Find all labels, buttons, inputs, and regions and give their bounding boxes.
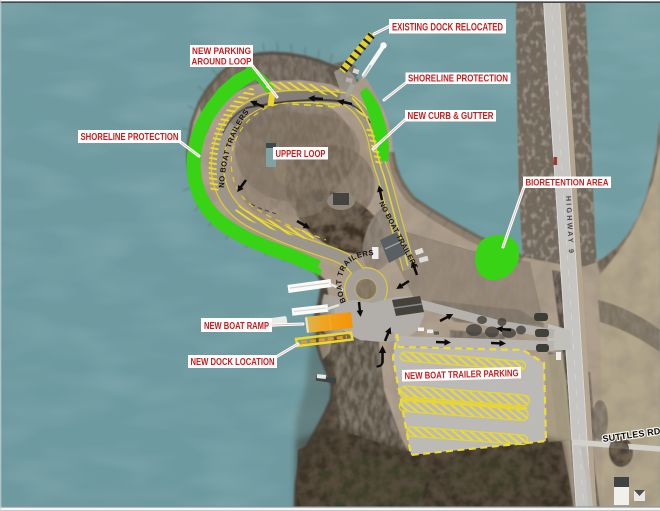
svg-text:NEW DOCK LOCATION: NEW DOCK LOCATION bbox=[191, 357, 275, 368]
svg-text:NEW BOAT RAMP: NEW BOAT RAMP bbox=[204, 321, 269, 332]
svg-text:AROUND LOOP: AROUND LOOP bbox=[192, 57, 253, 68]
svg-text:NEW PARKING: NEW PARKING bbox=[192, 46, 251, 57]
svg-text:EXISTING DOCK RELOCATED: EXISTING DOCK RELOCATED bbox=[392, 22, 503, 34]
svg-text:BIORETENTION AREA: BIORETENTION AREA bbox=[526, 178, 609, 189]
svg-text:UPPER LOOP: UPPER LOOP bbox=[276, 149, 326, 160]
svg-text:SHORELINE PROTECTION: SHORELINE PROTECTION bbox=[408, 74, 508, 85]
svg-text:SHORELINE PROTECTION: SHORELINE PROTECTION bbox=[81, 132, 179, 143]
svg-text:NEW CURB & GUTTER: NEW CURB & GUTTER bbox=[408, 111, 494, 122]
